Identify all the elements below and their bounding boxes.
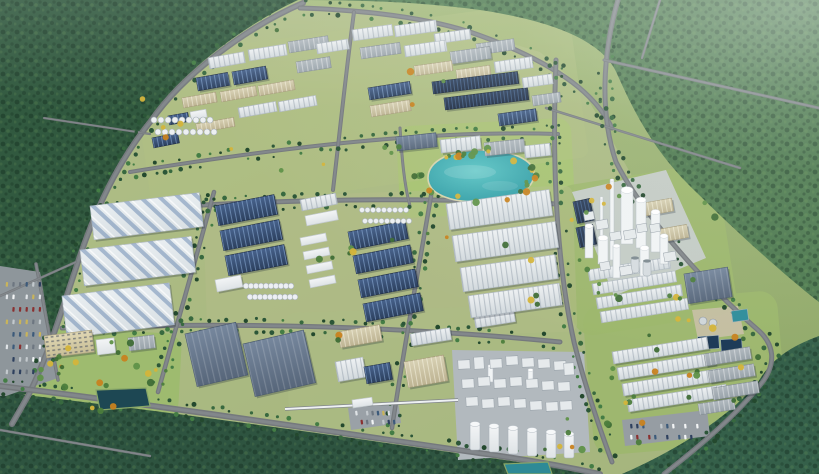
top-light-veil: [0, 0, 819, 110]
industrial-park-aerial-render: [0, 0, 819, 474]
scene-svg: [0, 0, 819, 474]
